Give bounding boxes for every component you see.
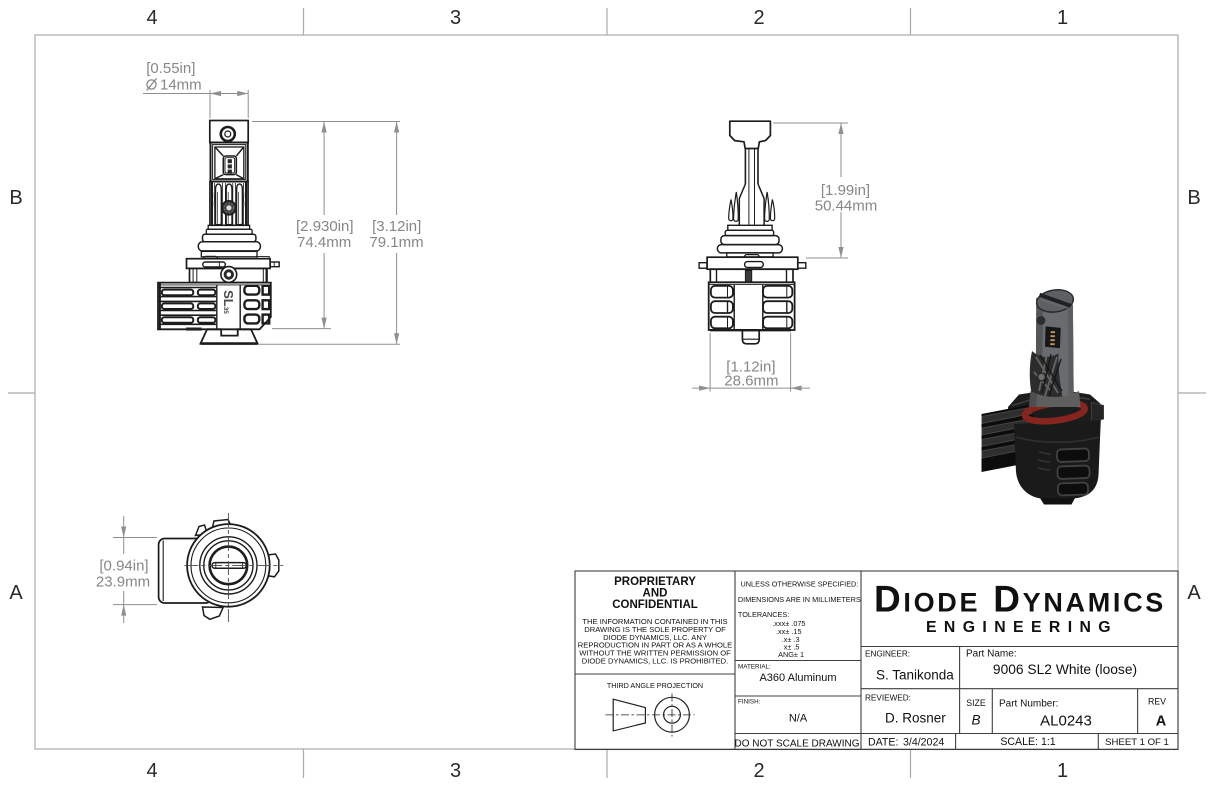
- svg-text:[3.12in]: [3.12in]: [372, 218, 421, 235]
- svg-text:DIODE DYNAMICS, LLC. IS PROHIB: DIODE DYNAMICS, LLC. IS PROHIBITED.: [582, 657, 728, 666]
- svg-text:SIZE: SIZE: [966, 698, 986, 708]
- svg-text:ENGINEERING: ENGINEERING: [926, 619, 1118, 636]
- svg-text:ANG± 1: ANG± 1: [778, 650, 804, 659]
- svg-text:B: B: [971, 713, 980, 728]
- svg-text:Part Number:: Part Number:: [999, 699, 1058, 710]
- svg-text:REV: REV: [1148, 697, 1166, 707]
- svg-text:SHEET 1 OF 1: SHEET 1 OF 1: [1105, 737, 1169, 748]
- svg-text:Part Name:: Part Name:: [966, 649, 1017, 660]
- svg-text:3/4/2024: 3/4/2024: [903, 737, 944, 749]
- svg-text:3: 3: [450, 7, 461, 29]
- svg-text:28.6mm: 28.6mm: [724, 373, 778, 390]
- svg-text:D. Rosner: D. Rosner: [885, 711, 946, 726]
- svg-text:1: 1: [1057, 760, 1068, 782]
- svg-text:S. Tanikonda: S. Tanikonda: [876, 668, 954, 683]
- svg-text:74.4mm: 74.4mm: [297, 234, 351, 251]
- svg-text:4: 4: [146, 760, 157, 782]
- svg-text:A: A: [1156, 714, 1167, 730]
- svg-text:THIRD ANGLE PROJECTION: THIRD ANGLE PROJECTION: [607, 681, 703, 690]
- svg-text:ENGINEER:: ENGINEER:: [865, 650, 910, 659]
- svg-text:23.9mm: 23.9mm: [96, 574, 150, 591]
- svg-text:SCALE: 1:1: SCALE: 1:1: [1000, 736, 1055, 748]
- svg-text:B: B: [9, 187, 22, 209]
- svg-text:4: 4: [146, 7, 157, 29]
- svg-text:[1.99in]: [1.99in]: [821, 182, 870, 199]
- svg-text:9006 SL2 White (loose): 9006 SL2 White (loose): [993, 662, 1137, 677]
- svg-text:2: 2: [753, 760, 764, 782]
- svg-text:DATE:: DATE:: [868, 737, 898, 749]
- svg-text:1: 1: [1057, 7, 1068, 29]
- svg-text:MATERIAL:: MATERIAL:: [738, 664, 771, 671]
- svg-text:79.1mm: 79.1mm: [369, 234, 423, 251]
- svg-text:A: A: [1187, 582, 1201, 604]
- svg-text:UNLESS OTHERWISE SPECIFIED:: UNLESS OTHERWISE SPECIFIED:: [741, 580, 859, 589]
- svg-text:3: 3: [450, 760, 461, 782]
- svg-text:B: B: [1187, 187, 1200, 209]
- svg-text:A: A: [9, 582, 23, 604]
- svg-text:REVIEWED:: REVIEWED:: [865, 694, 911, 703]
- svg-text:14mm: 14mm: [160, 77, 202, 94]
- svg-text:TOLERANCES:: TOLERANCES:: [738, 610, 789, 619]
- svg-text:2: 2: [753, 7, 764, 29]
- svg-text:FINISH:: FINISH:: [738, 699, 761, 706]
- svg-text:[0.55in]: [0.55in]: [146, 60, 195, 77]
- svg-text:[2.930in]: [2.930in]: [296, 218, 354, 235]
- svg-text:N/A: N/A: [789, 713, 808, 725]
- svg-text:AND: AND: [643, 588, 668, 600]
- svg-text:A360 Aluminum: A360 Aluminum: [759, 672, 836, 684]
- svg-text:CONFIDENTIAL: CONFIDENTIAL: [612, 599, 698, 611]
- svg-text:[0.94in]: [0.94in]: [99, 558, 148, 575]
- svg-text:DIMENSIONS ARE IN MILLIMETERS: DIMENSIONS ARE IN MILLIMETERS: [738, 595, 861, 604]
- svg-text:50.44mm: 50.44mm: [815, 198, 878, 215]
- svg-text:AL0243: AL0243: [1040, 713, 1092, 730]
- svg-text:PROPRIETARY: PROPRIETARY: [614, 576, 696, 588]
- svg-text:DO NOT SCALE DRAWING: DO NOT SCALE DRAWING: [734, 739, 859, 750]
